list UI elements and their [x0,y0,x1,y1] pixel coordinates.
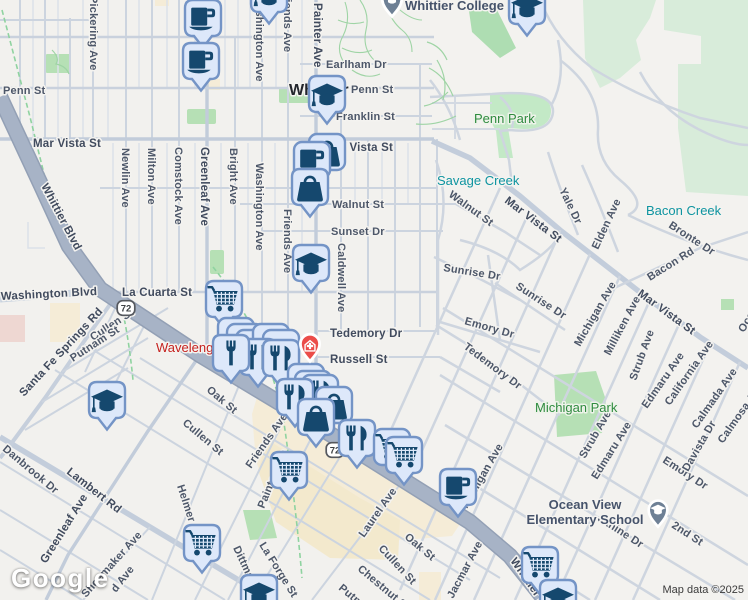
svg-text:Savage Creek: Savage Creek [437,173,520,188]
svg-text:Franklin St: Franklin St [336,111,395,123]
svg-text:Sunset Dr: Sunset Dr [331,226,385,238]
svg-text:Greenleaf Ave: Greenleaf Ave [198,147,210,226]
svg-text:Elementary School: Elementary School [526,512,643,527]
svg-text:Walnut St: Walnut St [332,199,384,211]
svg-text:Friends Ave: Friends Ave [281,209,293,273]
svg-text:Painter Ave: Painter Ave [311,3,323,68]
svg-text:Comstock Ave: Comstock Ave [172,147,184,225]
svg-text:Caldwell Ave: Caldwell Ave [335,243,347,312]
svg-text:La Cuarta St: La Cuarta St [122,287,192,299]
svg-text:Tedemory Dr: Tedemory Dr [330,328,403,340]
svg-text:Whittier College: Whittier College [405,0,504,13]
svg-text:Earlham Dr: Earlham Dr [326,59,387,71]
svg-text:Ocean View: Ocean View [549,497,623,512]
svg-text:Bacon Creek: Bacon Creek [646,203,722,218]
svg-text:Milton Ave: Milton Ave [145,148,157,205]
svg-text:Newlin Ave: Newlin Ave [119,148,131,208]
svg-text:Mar Vista St: Mar Vista St [33,138,101,150]
svg-text:Michigan Park: Michigan Park [535,400,618,415]
svg-text:Penn St: Penn St [351,84,393,96]
svg-text:Russell St: Russell St [330,354,388,366]
svg-text:Penn Park: Penn Park [474,111,535,126]
svg-text:Washington Ave: Washington Ave [253,163,265,251]
svg-text:Pickering Ave: Pickering Ave [87,0,99,71]
svg-text:Penn St: Penn St [3,85,45,97]
svg-text:Bright Ave: Bright Ave [227,148,239,205]
